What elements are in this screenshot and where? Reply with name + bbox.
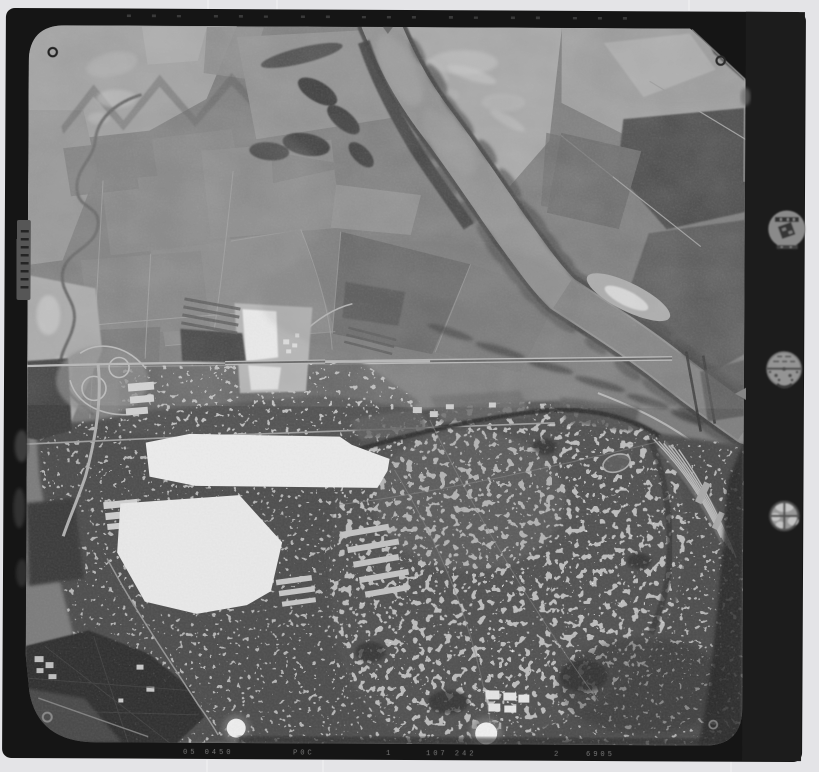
svg-text:2: 2 <box>554 751 561 759</box>
svg-text:107 242: 107 242 <box>426 750 476 758</box>
svg-text:P0C: P0C <box>293 749 315 757</box>
svg-text:05 0450: 05 0450 <box>183 749 233 757</box>
svg-text:1: 1 <box>386 750 393 758</box>
svg-text:6905: 6905 <box>586 751 615 759</box>
